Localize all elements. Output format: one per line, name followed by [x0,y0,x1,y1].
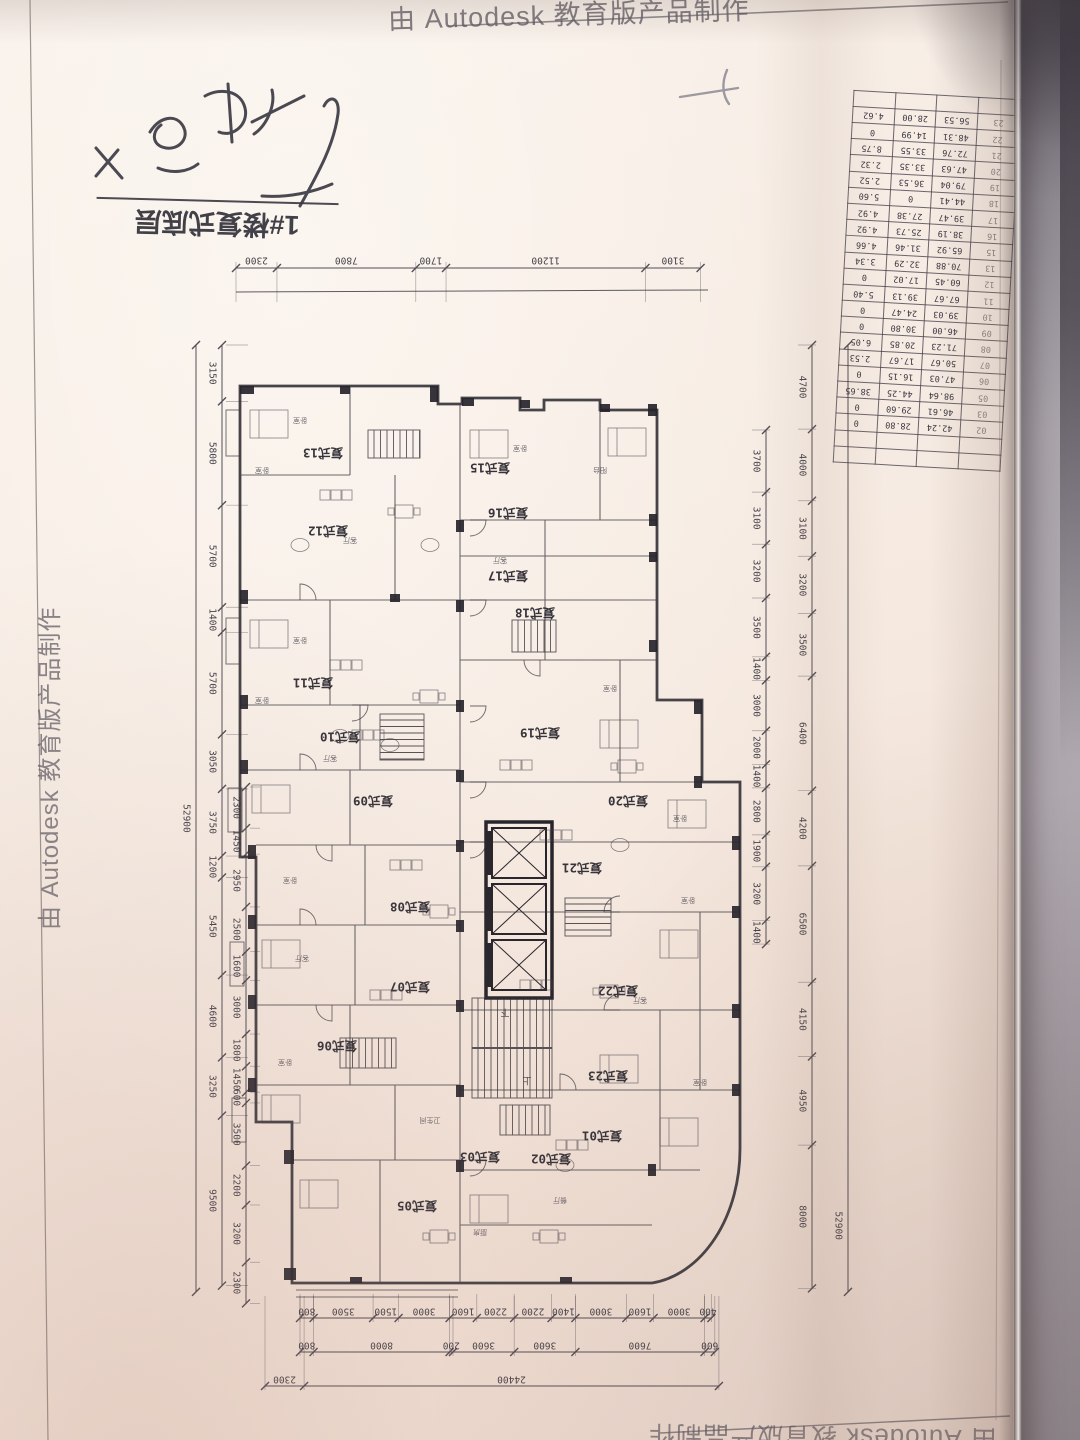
door-swing [470,706,486,722]
room-label: 卧室 [255,696,269,705]
dim-label: 2300 [273,1374,296,1385]
dim-label: 3000 [412,1306,435,1317]
dim-label: 3000 [231,996,242,1019]
dim-label: 600 [701,1340,718,1351]
dim-label: 1800 [231,1039,242,1062]
dim-label: 3200 [751,882,762,905]
unit-id-cell: 03 [961,404,1004,422]
area-value-cell: 39.03 [925,305,968,323]
handwritten-annotation [96,70,738,206]
area-value-cell: 42.24 [918,418,961,436]
dim-label: 8000 [797,1205,808,1228]
door-swing [524,660,540,676]
dim-label: 1700 [419,255,442,266]
dim-label: 4700 [797,376,808,399]
unit-label: 复式20 [608,794,649,809]
area-value-cell: 3.34 [844,252,887,270]
area-value-cell: 4.92 [846,219,889,237]
shear-wall [456,520,464,532]
area-value-cell: 38.65 [837,381,880,399]
room-label: 卧室 [283,876,297,885]
unit-label: 复式03 [460,1150,501,1165]
unit-id-cell: 23 [977,113,1020,131]
dim-label: 600 [231,1089,242,1106]
area-value-cell: 0 [836,397,879,415]
dim-label: 7800 [335,255,358,266]
area-value-cell: 0 [851,122,894,140]
dim-label: 1400 [207,608,218,631]
unit-id-cell: 07 [964,356,1007,374]
dim-label: 3700 [751,450,762,473]
dim-label: 3200 [751,560,762,583]
area-value-cell: 27.38 [888,206,931,224]
shear-wall [284,1268,296,1280]
area-value-cell [853,90,896,108]
room-label: 卧室 [693,1078,707,1087]
area-value-cell: 0 [841,300,884,318]
dim-label: 3250 [207,1075,218,1098]
area-value-cell: 0 [889,189,932,207]
area-value-cell: 70.88 [927,256,970,274]
unit-id-cell: 06 [963,372,1006,390]
shear-wall [240,386,254,394]
dim-label: 1600 [628,1306,651,1317]
staircase [565,898,611,936]
door-swing [316,1005,332,1021]
shear-wall [649,514,657,526]
dimension-chain-left_total [192,341,200,1296]
door-swing [300,909,316,925]
unit-label: 复式08 [390,900,431,915]
area-value-cell [876,432,919,450]
shear-wall [462,398,474,406]
dim-label: 3200 [797,573,808,596]
area-value-cell: 17.02 [885,270,928,288]
room-label: 厨房 [473,1228,487,1237]
unit-label: 复式05 [397,1199,438,1214]
area-value-cell: 4.62 [852,106,895,124]
room-label: 客厅 [295,954,309,963]
room-label: 卧室 [673,814,687,823]
area-value-cell: 16.15 [879,367,922,385]
dim-label: 2300 [231,796,242,819]
stair-label-up: 上 [522,1075,531,1086]
area-value-cell [834,430,877,448]
staircase [368,430,420,458]
shear-wall [456,1000,464,1012]
shear-wall [732,906,740,918]
area-value-cell: 67.67 [926,289,969,307]
area-value-cell: 98.64 [920,386,963,404]
area-value-cell: 44.25 [879,383,922,401]
unit-id-cell: 12 [968,275,1011,293]
area-value-cell: 72.76 [934,143,977,161]
dim-label: 1400 [751,765,762,788]
unit-label: 复式17 [488,569,529,584]
area-value-cell: 5.40 [842,284,885,302]
shear-wall [340,386,350,394]
area-value-cell: 24.47 [883,303,926,321]
door-swing [470,600,486,616]
dim-label: 5700 [207,545,218,568]
area-value-cell: 65.92 [928,240,971,258]
room-label: 卧室 [293,636,307,645]
room-label: 卧室 [681,896,695,905]
unit-label: 复式21 [562,861,603,876]
staircase [472,998,552,1098]
area-value-cell [918,434,961,452]
area-value-cell: 32.29 [886,254,929,272]
dim-label: 3000 [751,694,762,717]
shear-wall [248,845,256,859]
door-swing [300,584,316,600]
shear-wall [456,1085,464,1097]
door-swing [470,842,486,858]
unit-label: 复式23 [588,1069,629,1084]
dim-label: 3050 [207,750,218,773]
dim-label: 3200 [231,1222,242,1245]
dim-label: 3750 [207,811,218,834]
shear-wall [694,700,702,714]
balconies [226,410,458,1297]
area-value-cell: 0 [838,365,881,383]
area-value-cell: 4.92 [847,203,890,221]
dim-label: 3600 [533,1340,556,1351]
shear-wall [248,915,256,929]
dim-label: 1200 [207,855,218,878]
area-value-cell: 47.63 [933,159,976,177]
dim-label: 2500 [231,918,242,941]
dim-label: 1600 [451,1306,474,1317]
area-value-cell [917,450,960,468]
dim-label: 800 [298,1306,315,1317]
area-value-cell: 30.80 [882,319,925,337]
room-label: 餐厅 [553,1196,567,1205]
door-swing [560,1074,576,1090]
shear-wall [648,404,657,416]
area-value-cell: 25.73 [888,222,931,240]
dim-label: 200 [442,1340,459,1351]
area-value-cell: 8.75 [850,139,893,157]
area-value-cell: 46.61 [919,402,962,420]
staircase [500,1105,550,1135]
unit-id-cell: 22 [976,129,1019,147]
unit-label: 复式16 [488,506,529,521]
area-value-cell: 33.55 [892,141,935,159]
area-value-cell: 17.67 [880,351,923,369]
shear-wall [456,1160,464,1172]
dim-label: 4000 [797,453,808,476]
dim-label: 2950 [231,869,242,892]
shear-wall [248,995,256,1009]
unit-label: 复式15 [470,461,511,476]
area-value-cell: 2.52 [849,171,892,189]
area-value-cell: 2.53 [839,349,882,367]
area-value-cell: 38.19 [929,224,972,242]
door-swing [300,754,316,770]
area-value-cell: 4.66 [845,236,888,254]
shear-wall [648,1164,656,1176]
area-value-cell: 56.53 [936,111,979,129]
staircase [380,714,424,760]
shear-wall [284,1150,294,1164]
dim-label: 52900 [181,804,192,833]
unit-id-cell: 02 [960,420,1003,438]
dim-label: 5700 [207,672,218,695]
area-value-cell: 29.60 [878,400,921,418]
area-value-cell [875,448,918,466]
shear-wall [430,386,438,402]
area-value-cell: 71.23 [923,337,966,355]
dim-label: 3000 [589,1306,612,1317]
dimension-chain-bottom_middle [296,1296,719,1356]
area-value-cell: 47.03 [921,370,964,388]
dim-label: 1450 [231,1068,242,1091]
room-label: 卧室 [293,416,307,425]
unit-label: 复式19 [520,726,561,741]
shear-wall [248,1078,256,1092]
dim-label: 4200 [797,817,808,840]
area-value-cell: 79.04 [932,176,975,194]
area-value-cell: 6.05 [840,333,883,351]
area-value-cell: 44.41 [931,192,974,210]
dim-label: 4950 [797,1089,808,1112]
area-value-cell: 39.13 [884,286,927,304]
unit-id-cell: 05 [962,388,1005,406]
unit-label: 复式13 [303,446,344,461]
shear-wall [732,836,740,850]
unit-label: 复式09 [353,794,394,809]
door-swing [470,520,486,536]
room-label: 阳台 [593,466,607,475]
area-value-cell: 0 [840,316,883,334]
room-label: 卧室 [603,684,617,693]
stair-label-down: 下 [500,1007,509,1017]
dim-label: 5450 [207,915,218,938]
door-swing [316,845,332,861]
unit-id-cell: 08 [965,340,1008,358]
shear-wall [240,760,248,774]
room-label: 客厅 [323,754,337,763]
dim-label: 2800 [751,800,762,823]
staircase [512,620,556,652]
dim-label: 800 [298,1340,315,1351]
autodesk-watermark-left: 由 Autodesk 教育版产品制作 [30,607,65,930]
unit-id-cell: 13 [969,259,1012,277]
dim-label: 3100 [661,255,684,266]
area-table: 0242.2428.8000346.6129.6000598.6444.2538… [833,90,1022,472]
elevator-core [486,822,552,998]
area-value-cell: 50.67 [922,353,965,371]
unit-id-cell [958,453,1001,471]
room-label: 卧室 [278,1058,292,1067]
area-value-cell: 2.32 [850,155,893,173]
shear-wall [456,840,464,852]
shear-wall [649,552,657,562]
shear-wall [732,1004,740,1018]
shear-wall [240,590,248,604]
dim-label: 5800 [207,442,218,465]
unit-label: 复式07 [390,980,431,995]
unit-id-cell: 18 [973,194,1016,212]
room-label: 客厅 [343,536,357,545]
shear-wall [390,594,400,602]
door-swing [470,782,486,798]
dim-label: 3100 [797,517,808,540]
dim-label: 4150 [796,1008,807,1031]
room-label: 卧室 [255,466,269,475]
area-value-cell: 28.80 [877,416,920,434]
dim-label: 1600 [231,955,242,978]
area-value-cell: 31.46 [887,238,930,256]
unit-id-cell: 09 [966,323,1009,341]
unit-label: 复式22 [598,984,639,999]
dim-label: 3000 [667,1306,690,1317]
unit-id-cell: 17 [972,210,1015,228]
area-value-cell: 0 [835,413,878,431]
dim-label: 2000 [751,736,762,759]
shear-wall [456,770,464,782]
unit-id-cell: 19 [974,178,1017,196]
dim-label: 1500 [374,1306,397,1317]
area-value-cell: 33.35 [891,157,934,175]
area-value-cell: 36.53 [890,173,933,191]
dim-label: 24400 [497,1374,526,1385]
area-value-cell: 5.60 [848,187,891,205]
dimension-chain-right_total [844,341,852,1296]
dim-label: 3500 [231,1123,242,1146]
dim-label: 3500 [332,1306,355,1317]
unit-label: 复式06 [317,1039,358,1054]
dim-label: 2300 [231,1271,242,1294]
dim-label: 4600 [207,1005,218,1028]
shear-wall [694,776,702,788]
shear-wall [456,700,464,712]
shear-wall [732,1084,740,1096]
area-value-cell: 0 [843,268,886,286]
dim-label: 3150 [207,362,218,385]
area-value-cell: 14.99 [893,125,936,143]
dim-label: 3500 [797,633,808,656]
shear-wall [560,1277,572,1283]
shear-wall [649,640,657,652]
dim-label: 11200 [531,255,560,266]
unit-id-cell: 15 [970,243,1013,261]
unit-id-cell: 10 [966,307,1009,325]
area-value-cell: 46.00 [924,321,967,339]
dim-label: 6500 [797,913,808,936]
room-label: 卧室 [513,444,527,453]
dimension-chain-top [232,262,705,302]
shear-wall [600,404,610,412]
room-label: 客厅 [493,556,507,565]
dim-label: 2300 [245,255,268,266]
dim-label: 3600 [472,1340,495,1351]
sheet-title-label: 1#楼复式底层 [95,197,338,248]
dim-label: 9500 [207,1189,218,1212]
dim-label: 2200 [521,1306,544,1317]
dim-label: 1400 [552,1306,575,1317]
unit-id-cell: 20 [975,162,1018,180]
unit-label: 复式11 [293,676,334,691]
photo-of-floorplan-sheet: 由 Autodesk 教育版产品制作 由 Autodesk 教育版产品制作 由 … [0,0,1080,1440]
area-value-cell [833,446,876,464]
dim-label: 2200 [231,1174,242,1197]
dim-label: 1900 [751,839,762,862]
unit-label: 复式18 [515,606,556,621]
shear-wall [456,600,464,612]
area-value-cell: 39.47 [930,208,973,226]
dim-label: 52900 [833,1211,844,1240]
room-label: 卫生间 [420,1116,441,1125]
dim-label: 3500 [751,616,762,639]
room-label: 客厅 [633,996,647,1005]
unit-id-cell: 21 [975,146,1018,164]
dim-label: 8000 [370,1340,393,1351]
area-value-cell: 48.31 [935,127,978,145]
autodesk-watermark-bottom: 由 Autodesk 教育版产品制作 [648,1418,997,1440]
dim-label: 2200 [484,1306,507,1317]
shear-wall [350,1277,362,1283]
unit-id-cell [978,97,1021,115]
dim-label: 1400 [751,657,762,680]
area-value-cell [936,95,979,113]
unit-id-cell [959,437,1002,455]
shear-wall [240,695,248,709]
shear-wall [520,400,530,408]
area-value-cell: 20.85 [881,335,924,353]
area-value-cell [895,92,938,110]
dimension-chain-right_inner [752,426,770,948]
unit-id-cell: 11 [967,291,1010,309]
unit-id-cell: 16 [971,226,1014,244]
unit-label: 复式12 [308,524,349,539]
dim-label: 1450 [231,830,242,853]
dim-label: 6400 [797,722,808,745]
unit-label: 复式02 [531,1152,572,1167]
area-value-cell: 28.00 [894,109,937,127]
dim-label: 7600 [628,1340,651,1351]
dim-label: 1400 [751,921,762,944]
shear-wall [456,920,464,932]
area-value-cell: 60.45 [927,273,970,291]
dim-label: 400 [699,1306,716,1317]
dim-label: 3100 [751,507,762,530]
